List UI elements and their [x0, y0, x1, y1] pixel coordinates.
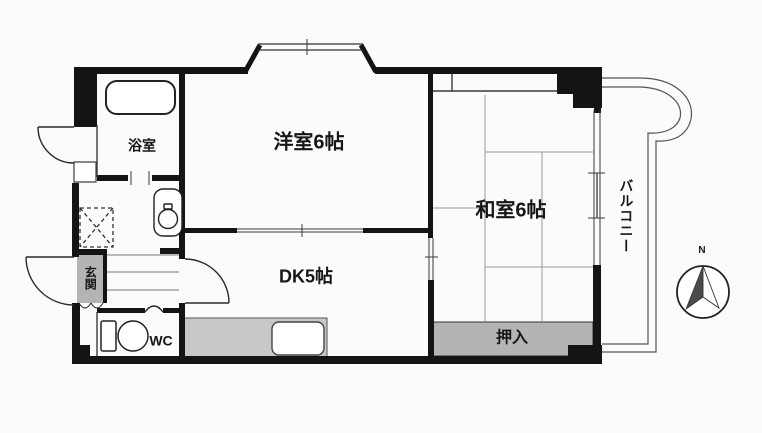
hall-floor-lines	[107, 255, 179, 290]
dk-label: DK5帖	[279, 268, 333, 287]
floor-plan-drawing	[0, 0, 762, 433]
utility-door-arc	[38, 127, 74, 163]
japanese-room-label: 和室6帖	[475, 201, 546, 222]
bath-window	[74, 162, 96, 182]
entrance-door-arc	[26, 257, 74, 305]
entrance-label: 玄関	[84, 266, 97, 290]
kitchen-sink	[272, 322, 324, 355]
compass-north-label: N	[698, 246, 705, 257]
western-room-label: 洋室6帖	[273, 133, 344, 154]
doors	[26, 127, 229, 312]
bath-label: 浴室	[128, 139, 156, 154]
bay-window	[245, 39, 376, 72]
wc-door-mark	[145, 306, 163, 312]
floor-plan: 浴室 洋室6帖 和室6帖 DK5帖 玄関 WC 押入 バルコニー N	[0, 0, 762, 433]
balcony-outline	[602, 78, 691, 352]
balcony-label: バルコニー	[619, 179, 634, 254]
vanity-sink	[154, 189, 182, 236]
bathtub	[106, 81, 175, 114]
entrance-step-mark	[79, 303, 103, 308]
toilet	[101, 321, 148, 351]
wc-label: WC	[149, 334, 172, 349]
dk-door-arc	[185, 259, 229, 303]
closet-label: 押入	[496, 331, 528, 348]
compass-icon	[677, 266, 729, 318]
washing-machine-space	[80, 208, 113, 247]
